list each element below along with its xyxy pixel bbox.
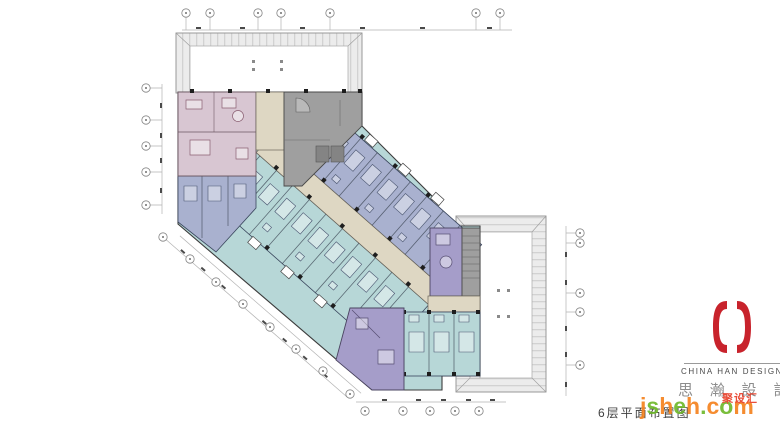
floor-plan-drawing [0, 0, 780, 426]
suite-block [178, 92, 256, 176]
brand-name-en: CHINA HAN DESIGN [678, 367, 780, 376]
right-junction [428, 228, 480, 312]
watermark: jsheh.com 聚设汇 [640, 393, 754, 420]
logo-mark [710, 300, 754, 354]
stair-right [462, 228, 480, 296]
corridor-top [256, 92, 284, 150]
elevator [316, 146, 329, 162]
page: CHINA HAN DESIGN 思 瀚 設 計 6层平面布置图 jsheh.c… [0, 0, 780, 426]
corridor-east [428, 296, 480, 312]
top-wing-roof [176, 33, 362, 93]
south-room-row [402, 310, 480, 376]
company-logo: CHINA HAN DESIGN 思 瀚 設 計 [678, 300, 780, 400]
watermark-badge: 聚设汇 [722, 390, 758, 406]
logo-divider [684, 363, 780, 364]
elevator [331, 146, 344, 162]
